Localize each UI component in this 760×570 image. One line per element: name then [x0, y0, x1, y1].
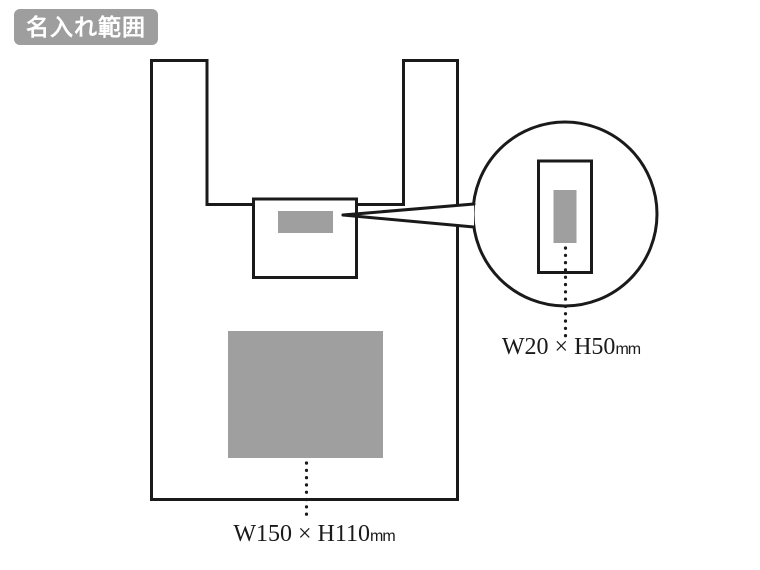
main-area-dimension-label: W150 × H110mm: [233, 522, 394, 546]
detail-print-area: [554, 190, 577, 243]
bag-diagram-svg: [0, 0, 760, 570]
print-area-diagram: 名入れ範囲 W150 × H110mm W20 × H50mm: [0, 0, 760, 570]
tab-print-area: [278, 211, 333, 233]
detail-area-dimension-unit: mm: [615, 341, 640, 358]
bag-top-tab-box: [254, 199, 357, 278]
detail-area-dimension-label: W20 × H50mm: [502, 335, 640, 359]
print-range-badge: 名入れ範囲: [14, 9, 158, 45]
main-area-dimension-unit: mm: [370, 528, 395, 545]
main-print-area: [228, 331, 383, 458]
main-area-dimension-value: W150 × H110: [233, 521, 370, 547]
detail-area-dimension-value: W20 × H50: [502, 334, 616, 360]
